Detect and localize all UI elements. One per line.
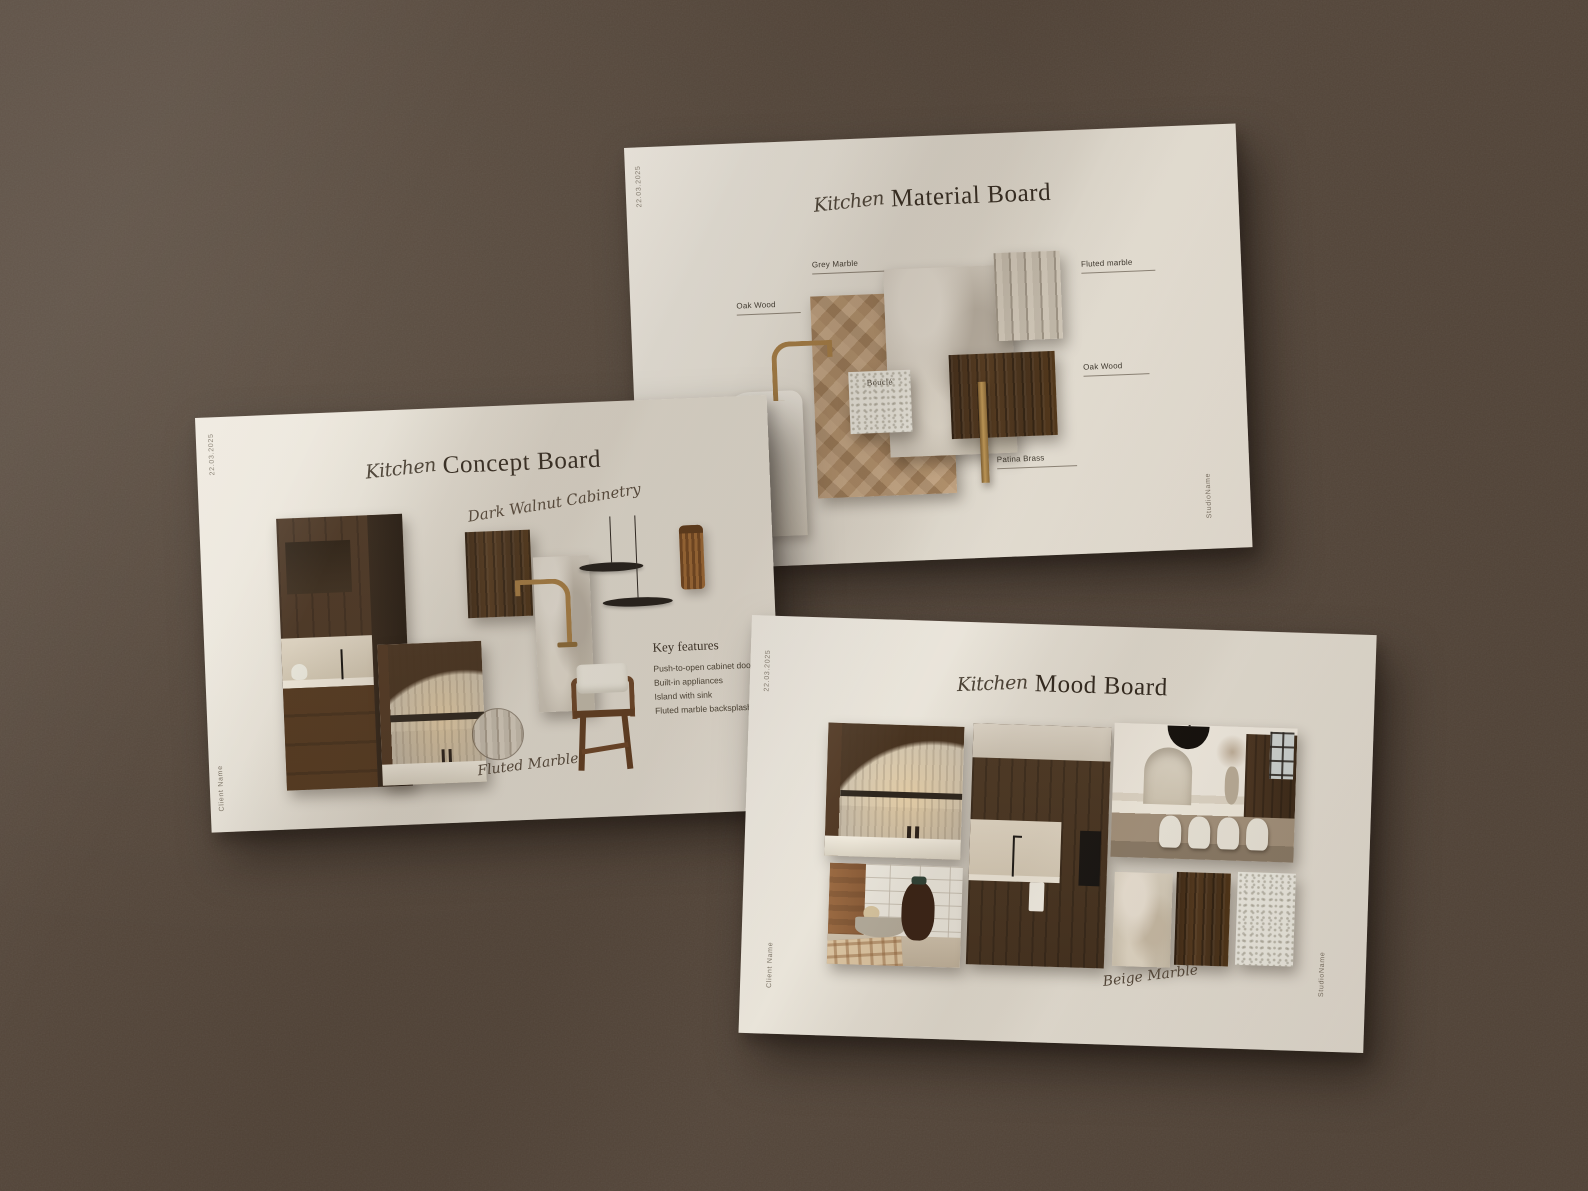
kettle (291, 663, 308, 680)
concept-board-title-main: Concept Board (442, 446, 601, 479)
countertop (824, 836, 961, 860)
oak-wood-right-label: Oak Wood (1083, 360, 1150, 377)
grey-marble-label: Grey Marble (812, 258, 885, 275)
arched-window (1269, 732, 1294, 780)
arched-niche-photo (824, 723, 964, 860)
backsplash (969, 820, 1062, 878)
patina-brass-label: Patina Brass (997, 452, 1077, 469)
pendant-lights (577, 514, 674, 634)
still-life-photo (827, 863, 963, 968)
boucle-stool (1217, 817, 1240, 850)
material-board-title: KitchenMaterial Board (626, 171, 1239, 224)
bar-stool (570, 663, 637, 771)
boucle-fabric-swatch: Bouclé (848, 370, 912, 434)
mood-board-title: KitchenMood Board (750, 661, 1376, 709)
mood-board-client-name: Client Name (766, 942, 774, 988)
material-board-studio-name: StudioName (1205, 473, 1214, 519)
dried-branches (1216, 734, 1250, 770)
stool-cushion (576, 663, 628, 694)
brass-faucet-cutout (771, 340, 834, 401)
concept-board-title-script: Kitchen (364, 454, 437, 484)
stool-leg (621, 713, 633, 769)
stool-stretcher (581, 742, 628, 755)
oak-wood-left-label: Oak Wood (736, 299, 801, 316)
walnut-wood-swatch (1174, 872, 1231, 967)
boucle-fabric-swatch (1235, 872, 1296, 967)
range-hood (285, 540, 353, 594)
lower-cabinets (283, 685, 378, 791)
stool-leg (579, 715, 587, 771)
boucle-stool (1158, 815, 1181, 848)
mood-board-title-script: Kitchen (957, 671, 1029, 696)
black-dome-pendant (1167, 726, 1210, 750)
bottle (448, 749, 452, 762)
brass-faucet-cutout (515, 578, 573, 647)
material-board-title-script: Kitchen (812, 187, 885, 217)
kitchen-island-photo (1110, 723, 1297, 863)
mood-board: 22.03.2025 Client Name StudioName Kitche… (739, 615, 1377, 1053)
boucle-stool (1246, 818, 1269, 851)
boucle-label: Bouclé (848, 376, 910, 388)
desk-surface: 22.03.2025 StudioName KitchenMaterial Bo… (0, 0, 1588, 1191)
concept-board-client-name: Client Name (217, 765, 226, 811)
concept-board: 22.03.2025 Client Name KitchenConcept Bo… (195, 395, 783, 833)
ceramic-vase (901, 881, 936, 941)
stone-vase (1224, 767, 1240, 805)
fluted-marble-label: Fluted marble (1081, 257, 1156, 274)
concept-board-title: KitchenConcept Board (197, 439, 770, 490)
arched-niche-photo (377, 641, 487, 786)
pendant-shade (603, 596, 673, 608)
towel (1028, 882, 1044, 911)
key-features-heading: Key features (652, 637, 719, 656)
amber-glass-vase (679, 525, 706, 590)
material-board-title-main: Material Board (890, 179, 1051, 212)
plaster-alcove (1143, 747, 1192, 806)
built-in-oven (1079, 830, 1101, 886)
pendant-light (599, 514, 673, 609)
countertop (382, 760, 487, 785)
bottle (906, 826, 910, 838)
walnut-kitchen-photo (966, 723, 1112, 968)
ceiling (973, 723, 1112, 761)
walnut-wood-swatch (949, 351, 1058, 439)
beige-marble-swatch (1112, 872, 1173, 968)
pendant-stem (634, 515, 638, 597)
bottle (915, 826, 919, 838)
bottle (442, 749, 446, 762)
mood-board-studio-name: StudioName (1318, 951, 1326, 997)
boucle-stool (1188, 816, 1211, 849)
checkered-cloth (827, 936, 903, 968)
mood-board-title-main: Mood Board (1034, 670, 1168, 701)
fluted-marble-swatch (994, 251, 1063, 342)
fluted-marble-circle-swatch (472, 708, 524, 760)
